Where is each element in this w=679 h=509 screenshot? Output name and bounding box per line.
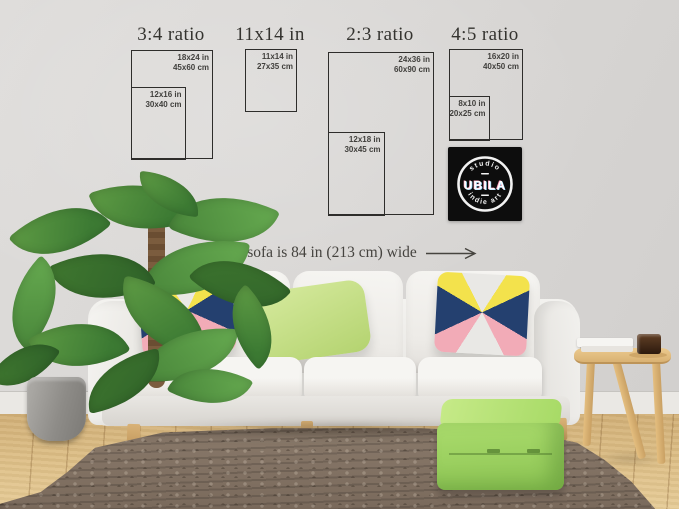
pouf-stitch (487, 449, 500, 453)
svg-text:indie art: indie art (466, 191, 504, 206)
logo-top-text: studio (468, 160, 501, 172)
brand-logo-badge: studio UBILA UBILA UBILA indie art (448, 147, 522, 221)
frame-11x14: 11x14 in 27x35 cm (245, 49, 297, 112)
throw-pillow-geometric-right (434, 272, 530, 357)
books-stack (581, 346, 633, 352)
floor-pouf (437, 423, 564, 490)
frame-8x10: 8x10 in 20x25 cm (449, 96, 490, 141)
frame-label: 8x10 in 20x25 cm (449, 99, 485, 120)
frame-label: 16x20 in 40x50 cm (483, 52, 519, 73)
pouf-stitch (527, 449, 540, 453)
frame-label: 24x36 in 60x90 cm (394, 55, 430, 76)
frame-label: 12x16 in 30x40 cm (145, 90, 181, 111)
section-title-4-5: 4:5 ratio (420, 24, 550, 46)
frame-24x36: 24x36 in 60x90 cm 12x18 in 30x45 cm (328, 52, 434, 215)
size-guide-room-scene: 3:4 ratio 18x24 in 45x60 cm 12x16 in 30x… (0, 0, 679, 509)
frame-12x16: 12x16 in 30x40 cm (131, 87, 186, 160)
logo-name: UBILA (464, 179, 507, 193)
frame-label: 12x18 in 30x45 cm (344, 135, 380, 156)
right-arrow-icon (426, 247, 478, 260)
candle-jar (637, 334, 661, 354)
pouf-seam (449, 453, 552, 455)
logo-divider-bottom (481, 195, 489, 197)
logo-bottom-text: indie art (466, 191, 504, 206)
frame-label: 11x14 in 27x35 cm (257, 52, 293, 73)
frame-18x24: 18x24 in 45x60 cm 12x16 in 30x40 cm (131, 50, 213, 159)
plant-pot (27, 377, 86, 441)
brand-logo: studio UBILA UBILA UBILA indie art (448, 147, 522, 221)
frame-label: 18x24 in 45x60 cm (173, 53, 209, 74)
frame-12x18: 12x18 in 30x45 cm (328, 132, 385, 216)
frame-16x20: 16x20 in 40x50 cm 8x10 in 20x25 cm (449, 49, 523, 140)
svg-text:studio: studio (468, 160, 501, 172)
sofa-width-label: sofa is 84 in (213 cm) wide (244, 244, 420, 262)
logo-divider-top (481, 173, 489, 175)
